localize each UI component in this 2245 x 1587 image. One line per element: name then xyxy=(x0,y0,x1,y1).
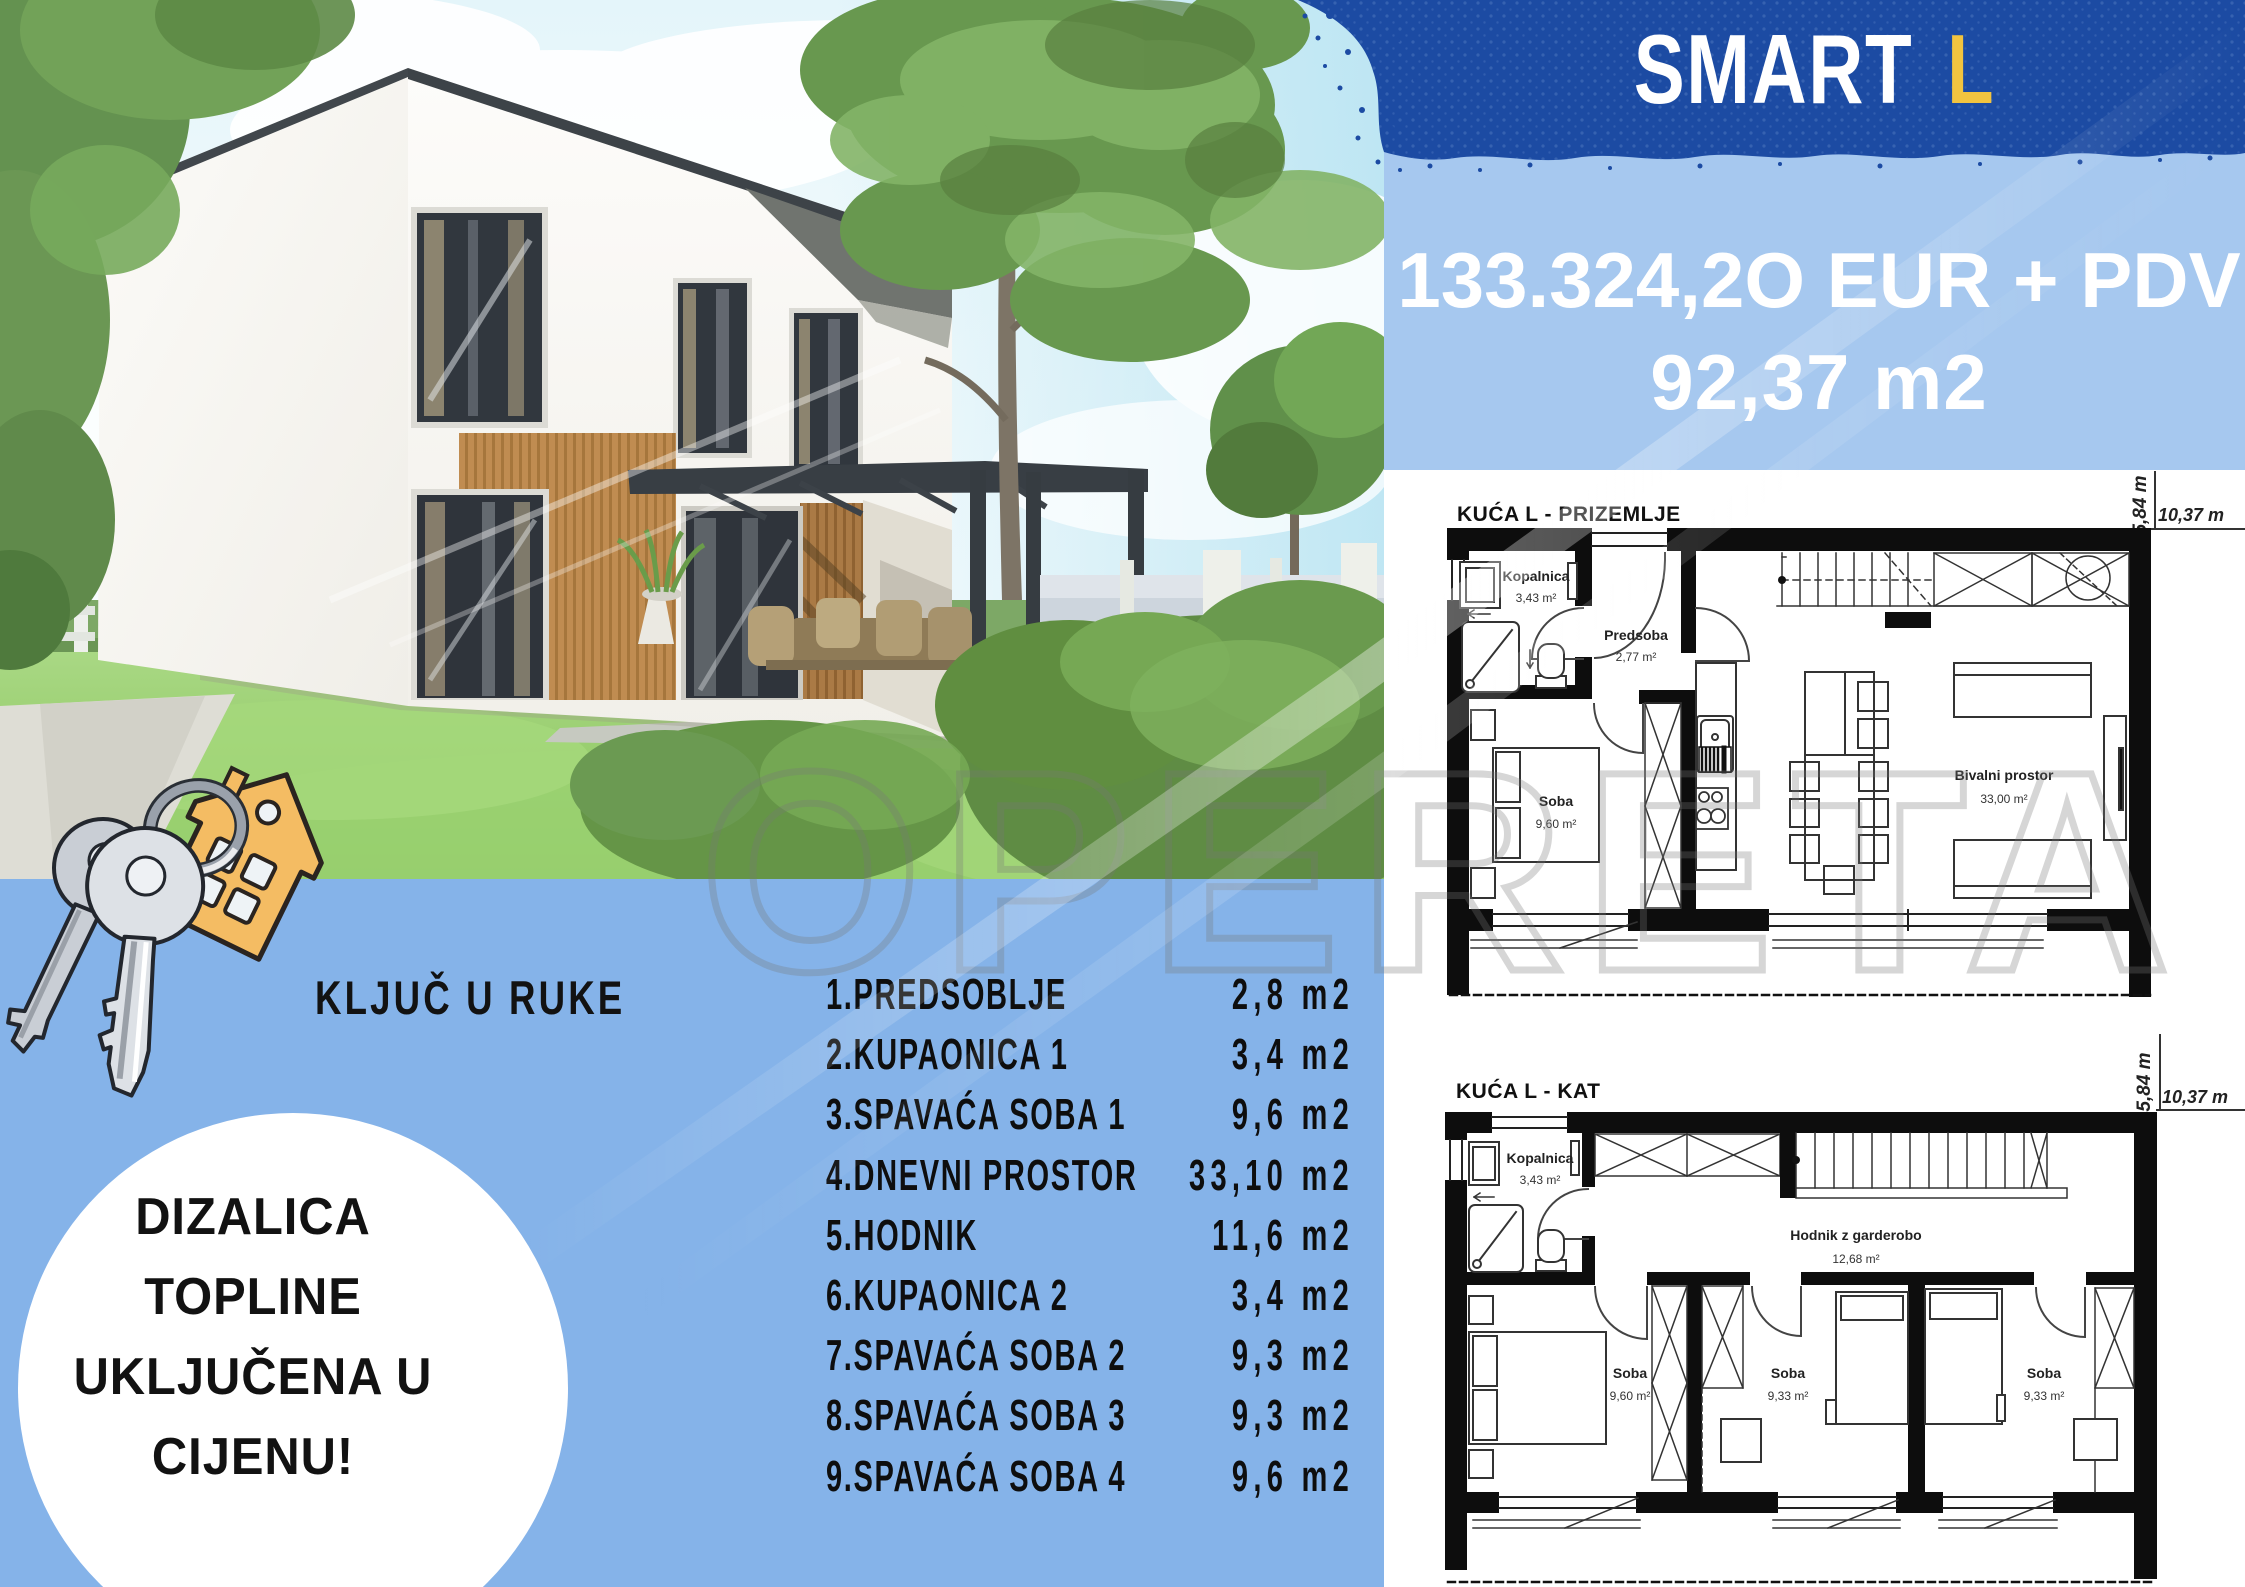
svg-text:9,33 m²: 9,33 m² xyxy=(1768,1389,1809,1403)
svg-text:Soba: Soba xyxy=(1771,1365,1805,1381)
svg-text:12,68 m²: 12,68 m² xyxy=(1832,1252,1879,1266)
svg-text:5,84 m: 5,84 m xyxy=(2134,1052,2155,1111)
svg-text:3,43 m²: 3,43 m² xyxy=(1520,1173,1561,1187)
svg-text:Predsoba: Predsoba xyxy=(1604,627,1668,643)
svg-text:10,37 m: 10,37 m xyxy=(2158,505,2224,525)
svg-text:KUĆA L - PRIZEMLJE: KUĆA L - PRIZEMLJE xyxy=(1457,502,1681,526)
svg-text:Kopalnica: Kopalnica xyxy=(1503,568,1570,584)
svg-text:KUĆA L - KAT: KUĆA L - KAT xyxy=(1456,1079,1600,1103)
svg-text:Soba: Soba xyxy=(1613,1365,1647,1381)
svg-text:Hodnik z garderobo: Hodnik z garderobo xyxy=(1790,1227,1921,1243)
svg-text:33,00 m²: 33,00 m² xyxy=(1980,792,2027,806)
svg-text:Bivalni prostor: Bivalni prostor xyxy=(1955,767,2054,783)
svg-text:3,43 m²: 3,43 m² xyxy=(1516,591,1557,605)
svg-text:10,37 m: 10,37 m xyxy=(2162,1087,2228,1107)
svg-text:Soba: Soba xyxy=(2027,1365,2061,1381)
svg-text:Kopalnica: Kopalnica xyxy=(1507,1150,1574,1166)
svg-text:2,77 m²: 2,77 m² xyxy=(1616,650,1657,664)
svg-text:Soba: Soba xyxy=(1539,793,1573,809)
svg-text:9,60 m²: 9,60 m² xyxy=(1536,817,1577,831)
svg-text:9,33 m²: 9,33 m² xyxy=(2024,1389,2065,1403)
svg-text:9,60 m²: 9,60 m² xyxy=(1610,1389,1651,1403)
svg-text:5,84 m: 5,84 m xyxy=(2130,475,2151,534)
